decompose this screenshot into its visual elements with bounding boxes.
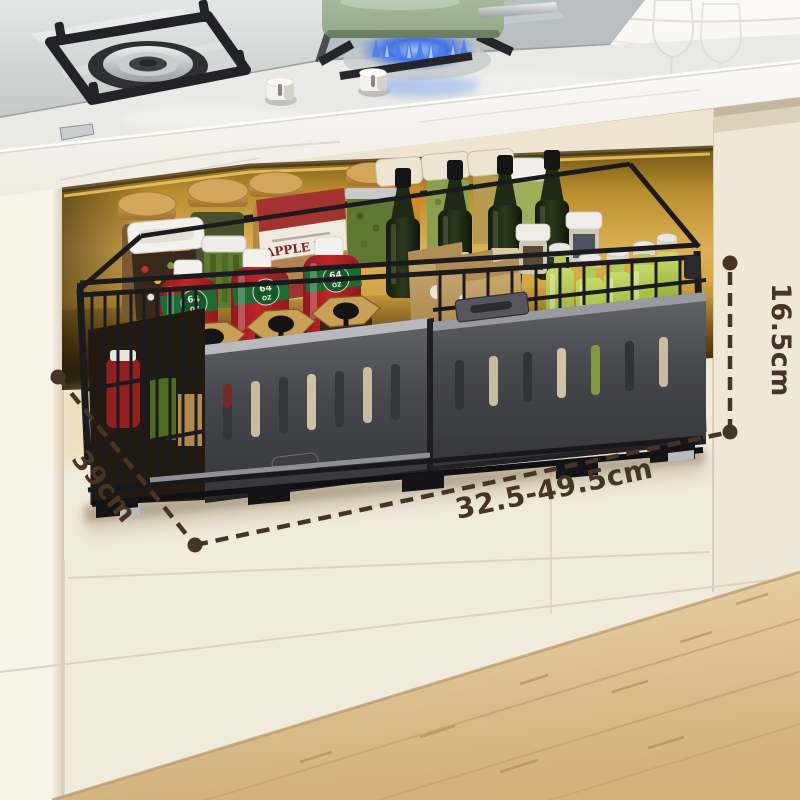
dimension-endpoint bbox=[723, 256, 738, 271]
product-photo: APPLE PIE 64 OZ bbox=[0, 0, 800, 800]
dimension-label-height: 16.5cm bbox=[765, 283, 796, 397]
dimension-endpoint bbox=[51, 370, 66, 385]
svg-text:OZ: OZ bbox=[262, 294, 273, 302]
stove-control-knob-left bbox=[265, 78, 297, 107]
badge-value: 64 bbox=[187, 294, 201, 305]
product-illustration: APPLE PIE 64 OZ bbox=[0, 0, 800, 800]
dimension-endpoint bbox=[188, 538, 203, 553]
basket-front-panel-right bbox=[433, 292, 706, 471]
dimension-endpoint bbox=[723, 425, 738, 440]
stove-control-knob-right bbox=[358, 69, 390, 98]
svg-text:OZ: OZ bbox=[332, 281, 343, 289]
